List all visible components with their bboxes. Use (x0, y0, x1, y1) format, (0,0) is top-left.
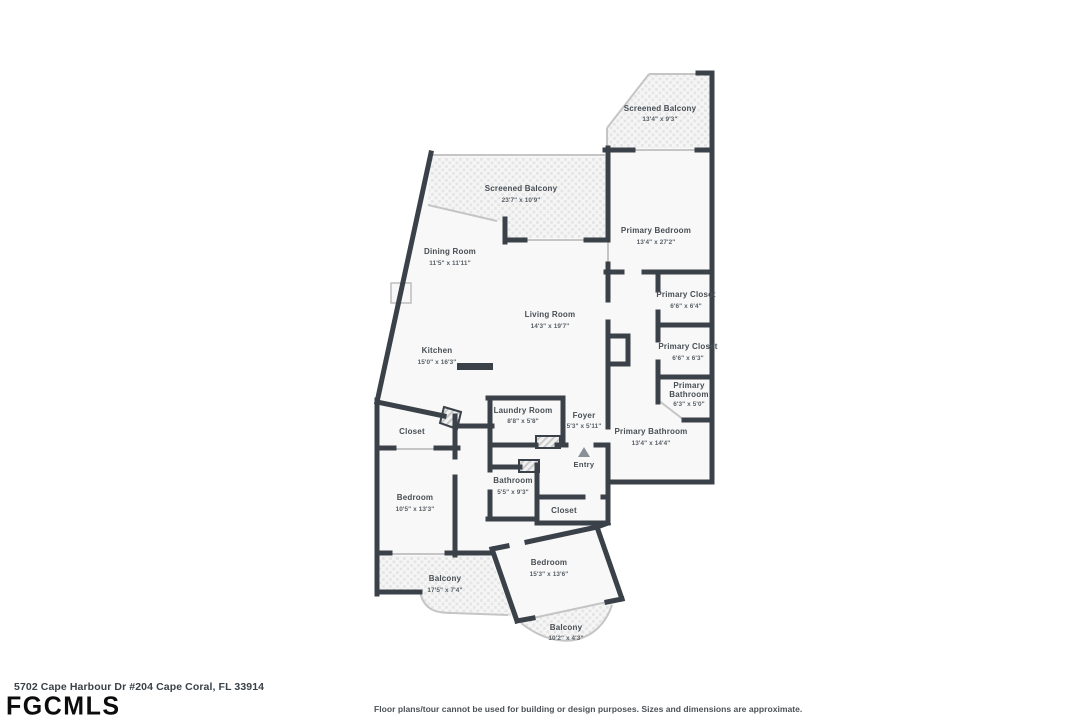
room-label-closet-left: Closet (399, 427, 425, 436)
kitchen-island (457, 363, 493, 370)
floor-plan-page: Screened Balcony 13'4" x 9'3" Primary Be… (0, 0, 1086, 724)
room-label-primary-closet-1: Primary Closet (656, 290, 715, 299)
room-label-closet-bottom: Closet (551, 506, 577, 515)
room-label-primary-bathroom: Primary Bathroom (615, 427, 688, 436)
room-dims-primary-bathroom-small: 6'3" x 5'0" (673, 401, 705, 408)
room-dims-primary-bathroom: 13'4" x 14'4" (632, 440, 671, 447)
room-label-kitchen: Kitchen (422, 346, 453, 355)
room-label-primary-closet-2: Primary Closet (658, 342, 717, 351)
room-dims-laundry-room: 8'8" x 5'8" (507, 418, 539, 425)
room-dims-primary-closet-1: 6'6" x 6'4" (670, 303, 702, 310)
room-label-balcony-left: Balcony (429, 574, 462, 583)
room-dims-screened-balcony-main: 23'7" x 10'9" (502, 197, 541, 204)
room-dims-dining-room: 11'5" x 11'11" (429, 260, 470, 267)
room-dims-balcony-bottom: 10'2" x 4'3" (548, 635, 583, 642)
disclaimer-text: Floor plans/tour cannot be used for buil… (374, 704, 802, 714)
room-label-primary-bedroom: Primary Bedroom (621, 226, 691, 235)
room-label-screened-balcony-top: Screened Balcony (624, 104, 697, 113)
room-label-primary-bathroom-small-2: Bathroom (669, 390, 708, 399)
room-dims-bathroom: 5'5" x 9'3" (497, 489, 529, 496)
room-label-bedroom-left: Bedroom (397, 493, 434, 502)
room-dims-primary-closet-2: 6'6" x 6'3" (672, 355, 704, 362)
balcony-area-left (379, 556, 513, 616)
room-dims-screened-balcony-top: 13'4" x 9'3" (642, 116, 677, 123)
room-label-screened-balcony-main: Screened Balcony (485, 184, 558, 193)
room-label-bedroom-bottom: Bedroom (531, 558, 568, 567)
room-dims-bedroom-bottom: 15'3" x 13'6" (530, 571, 569, 578)
room-dims-living-room: 14'3" x 19'7" (531, 323, 570, 330)
room-label-primary-bathroom-small-1: Primary (673, 381, 705, 390)
room-label-balcony-bottom: Balcony (550, 623, 583, 632)
room-dims-bedroom-left: 10'5" x 13'3" (396, 506, 435, 513)
room-label-dining-room: Dining Room (424, 247, 476, 256)
room-label-living-room: Living Room (525, 310, 576, 319)
floor-plan-drawing: Screened Balcony 13'4" x 9'3" Primary Be… (0, 0, 1086, 724)
fgcmls-logo: FGCMLS (6, 691, 121, 721)
room-label-bathroom: Bathroom (493, 476, 532, 485)
room-dims-foyer: 5'3" x 5'11" (567, 423, 602, 430)
room-label-entry: Entry (574, 460, 595, 469)
room-label-foyer: Foyer (573, 411, 596, 420)
room-label-laundry-room: Laundry Room (494, 406, 553, 415)
room-dims-primary-bedroom: 13'4" x 27'2" (637, 239, 676, 246)
room-dims-kitchen: 15'0" x 16'3" (418, 359, 457, 366)
room-dims-balcony-left: 17'5" x 7'4" (427, 587, 462, 594)
